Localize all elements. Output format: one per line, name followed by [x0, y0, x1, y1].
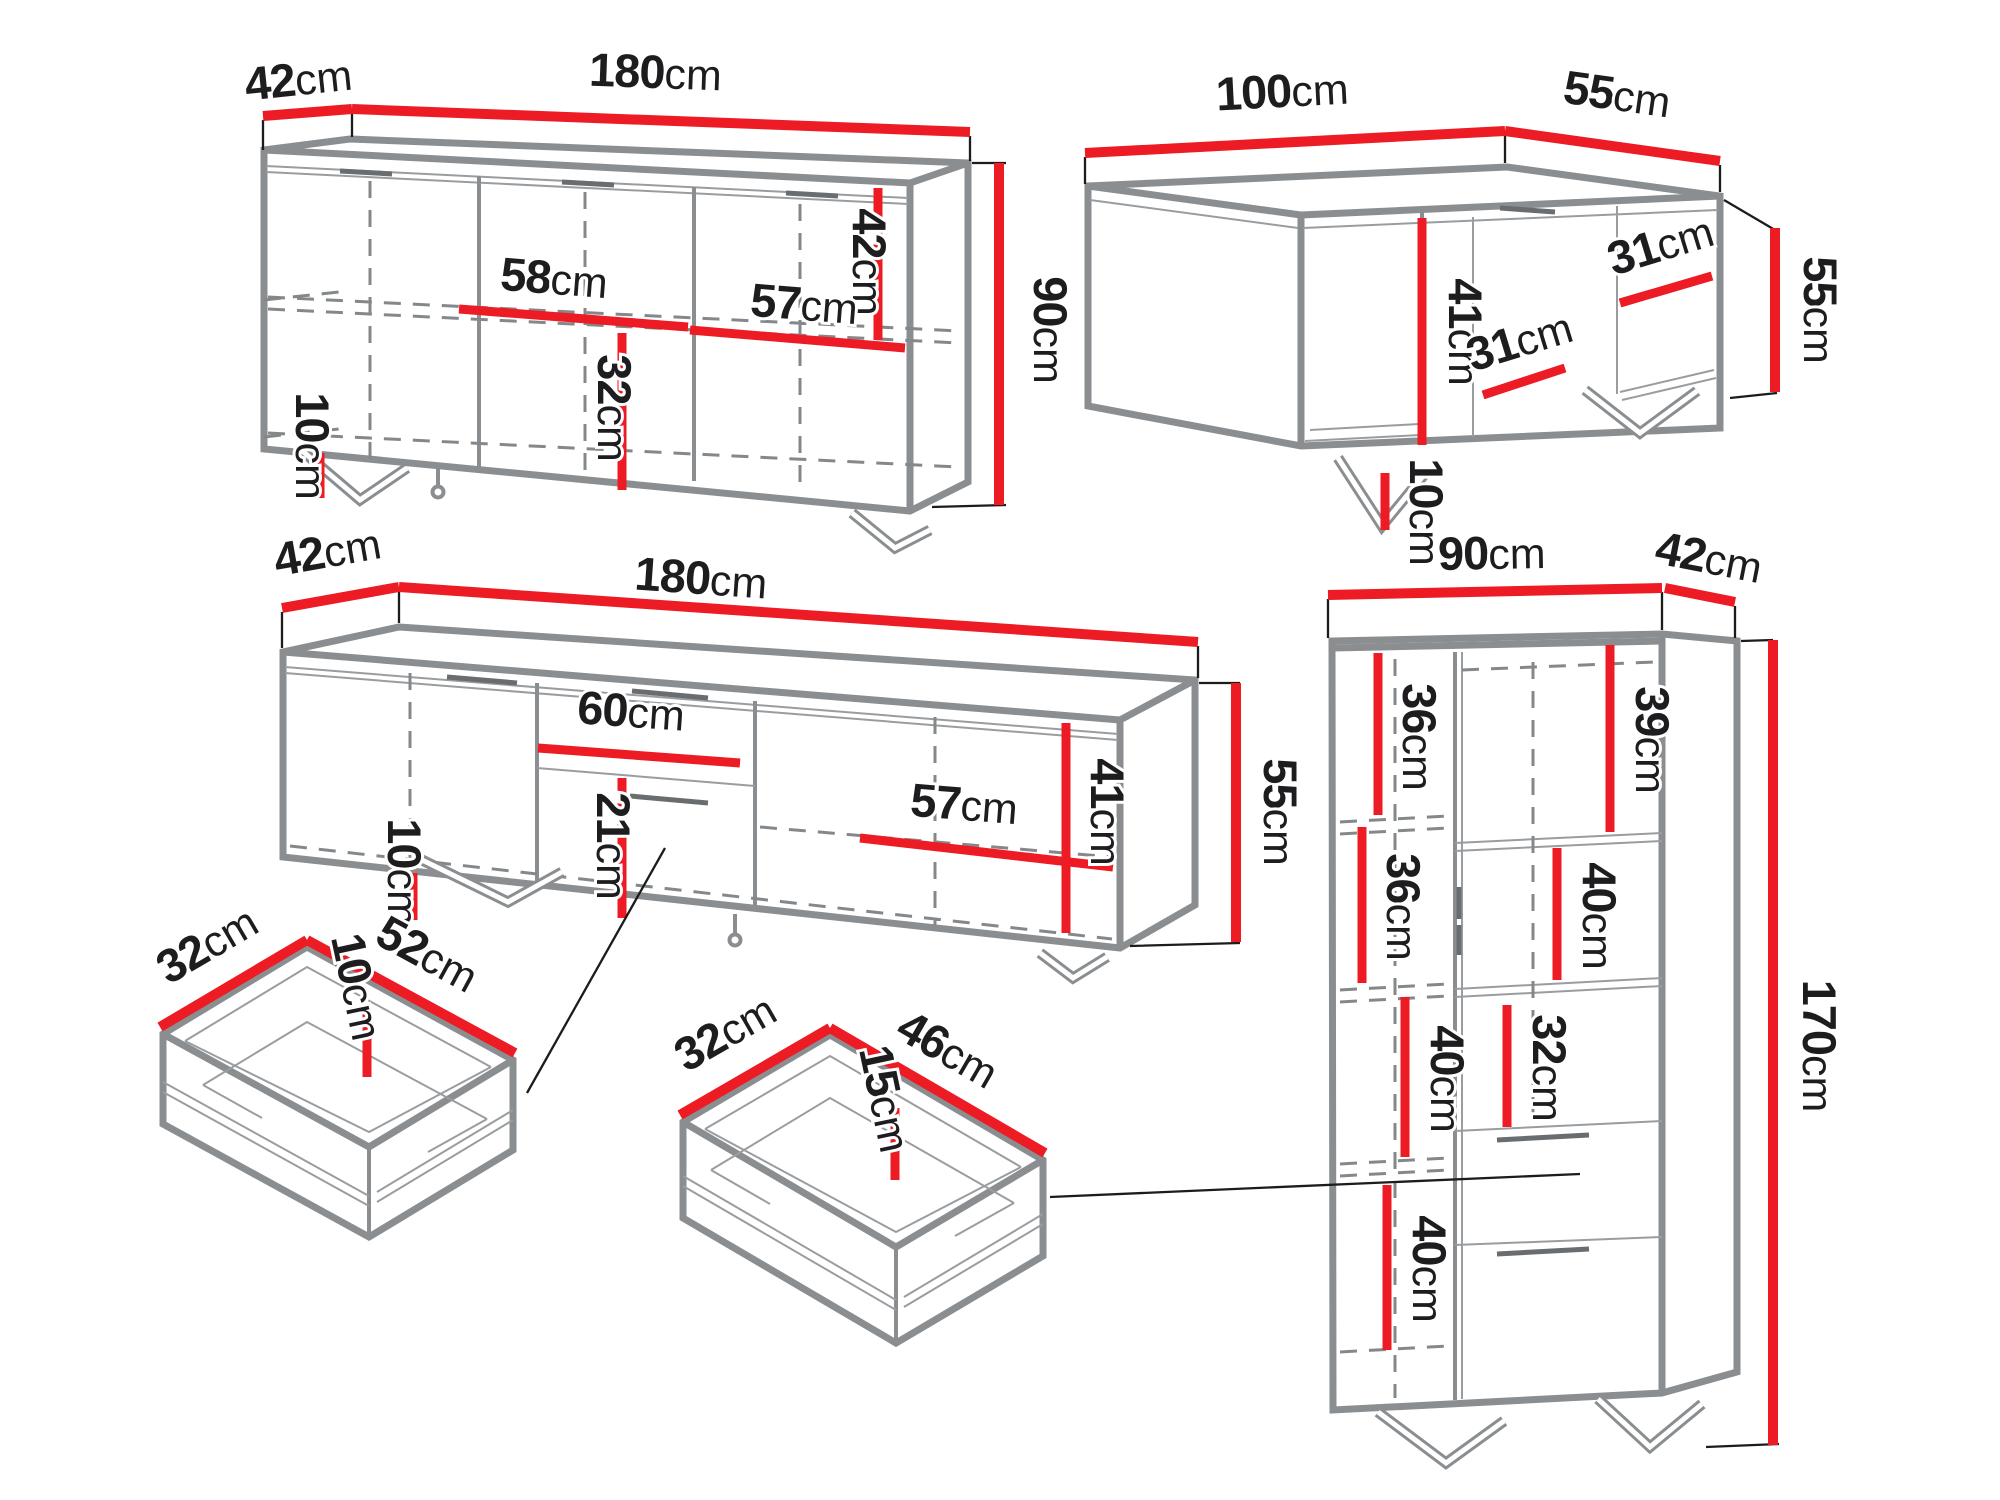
tall-cabinet-left-shelf-1-label: 36cm	[1393, 683, 1446, 791]
tv-stand-drawing: 42cm 180cm 55cm 60cm 21cm 57cm 41cm 10cm	[270, 515, 1307, 978]
tall-cabinet-left-shelf-4-label: 40cm	[1403, 1215, 1456, 1323]
sideboard-height-label: 90cm	[1024, 276, 1077, 384]
tv-stand-center-foot-cap	[730, 935, 741, 946]
sideboard-depth-line	[263, 109, 352, 116]
sideboard-depth-label: 42cm	[242, 47, 355, 111]
coffee-table-drawing: 100cm 55cm 55cm 41cm 31cm 31cm 10cm	[1085, 60, 1847, 566]
large-drawer-drawing: 32cm 46cm 15cm	[665, 982, 1045, 1343]
tall-cabinet-drawing: 90cm 42cm 170cm 36cm 36cm 40cm 40cm 39cm…	[1328, 521, 1846, 1463]
furniture-dimensions-diagram: 42cm 180cm 90cm 42cm 58cm 57cm 32cm 10cm	[0, 0, 2000, 1500]
tall-cabinet-width-label: 90cm	[1437, 525, 1546, 580]
tall-cabinet-depth-label: 42cm	[1651, 521, 1767, 594]
sideboard-width-line	[352, 109, 970, 132]
tall-cabinet-height-label: 170cm	[1793, 980, 1846, 1113]
sideboard-drawing: 42cm 180cm 90cm 42cm 58cm 57cm 32cm 10cm	[242, 43, 1077, 548]
coffee-table-depth-label: 55cm	[1560, 60, 1674, 127]
tall-cabinet-right-shelf-top-label: 39cm	[1626, 686, 1679, 794]
coffee-table-height-label: 55cm	[1794, 256, 1847, 364]
tv-stand-drawer-height-label: 21cm	[587, 792, 640, 900]
tv-stand-width-label: 180cm	[633, 546, 769, 608]
tv-stand-height-label: 55cm	[1254, 758, 1307, 866]
sideboard-middle-lower-height-label: 32cm	[588, 354, 641, 462]
tv-stand-depth-label: 42cm	[270, 515, 385, 586]
tall-cabinet-right-shelf-lower-label: 32cm	[1523, 1014, 1576, 1122]
sideboard-leg-height-label: 10cm	[286, 392, 339, 500]
small-drawer-drawing: 32cm 52cm 10cm	[147, 894, 515, 1237]
tall-cabinet-right-shelf-mid-label: 40cm	[1573, 862, 1626, 970]
tall-cabinet-left-shelf-2-label: 36cm	[1377, 853, 1430, 961]
tv-stand-inner-right-height-label: 41cm	[1081, 758, 1134, 866]
tall-cabinet-depth-line	[1665, 588, 1735, 602]
coffee-table-depth-line	[1505, 131, 1720, 161]
tall-cabinet-width-line	[1328, 588, 1662, 595]
sideboard-width-label: 180cm	[588, 43, 723, 101]
coffee-table-width-label: 100cm	[1214, 61, 1349, 121]
tv-stand-depth-line	[282, 587, 399, 608]
tall-cabinet-left-shelf-3-label: 40cm	[1421, 1025, 1474, 1133]
coffee-table-width-line	[1085, 131, 1505, 153]
sideboard-center-foot-cap	[433, 487, 444, 498]
